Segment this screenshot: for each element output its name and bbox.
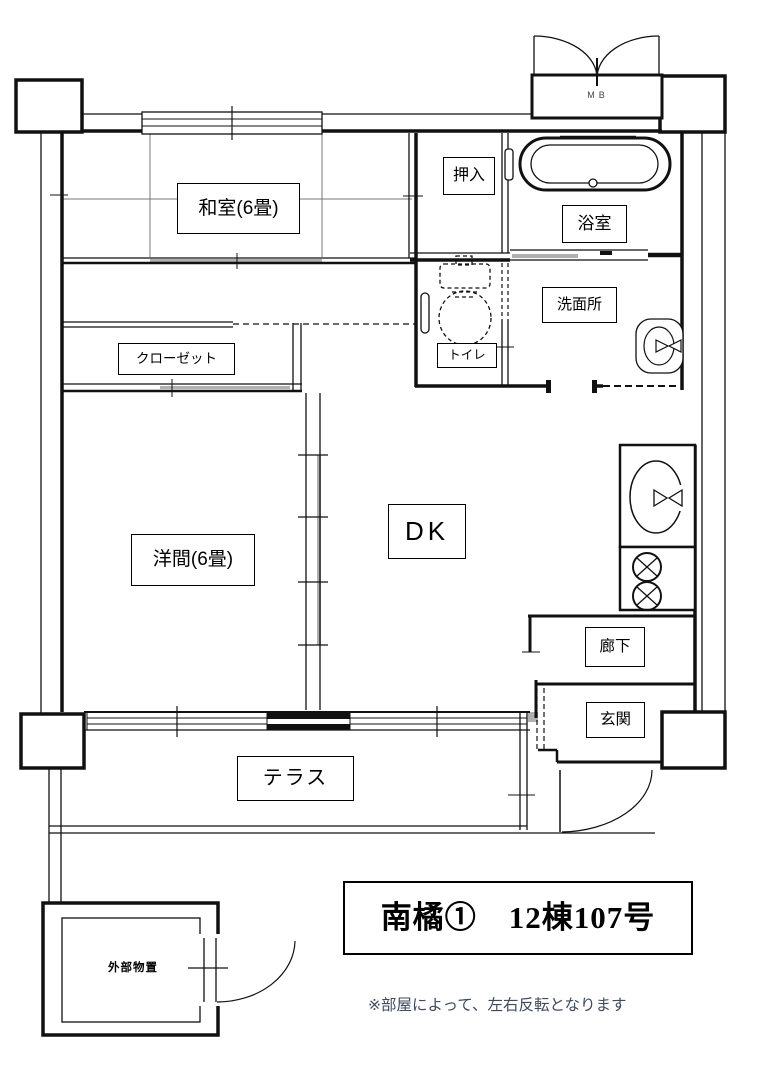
kitchen-sink-icon [620, 445, 695, 547]
room-label-entrance: 玄関 [586, 702, 645, 738]
room-label-dk: DK [388, 504, 466, 559]
room-label-washroom: 洗面所 [542, 287, 617, 323]
washbasin-icon [636, 319, 683, 373]
room-label-toilet: トイレ [437, 343, 497, 368]
unit-title: 南橘① 12棟107号 [343, 881, 693, 955]
meter-box-label: MB [574, 89, 622, 103]
room-label-closet: クローゼット [118, 343, 235, 375]
room-label-bathroom: 浴室 [562, 205, 627, 243]
stove-burners-icon [620, 547, 695, 610]
room-label-washitsu: 和室(6畳) [177, 183, 300, 234]
room-label-oshiire: 押入 [443, 157, 495, 195]
mirror-note: ※部屋によって、左右反転となります [368, 995, 668, 1017]
room-label-terrace: テラス [237, 756, 354, 801]
room-label-western-room: 洋間(6畳) [131, 534, 255, 586]
bathtub-icon [505, 137, 670, 190]
floor-plan-page: 和室(6畳) 押入 浴室 洗面所 トイレ クローゼット 洋間(6畳) DK 廊下… [0, 0, 770, 1078]
room-label-outdoor-storage: 外部物置 [88, 959, 178, 977]
room-label-hallway: 廊下 [585, 627, 645, 667]
